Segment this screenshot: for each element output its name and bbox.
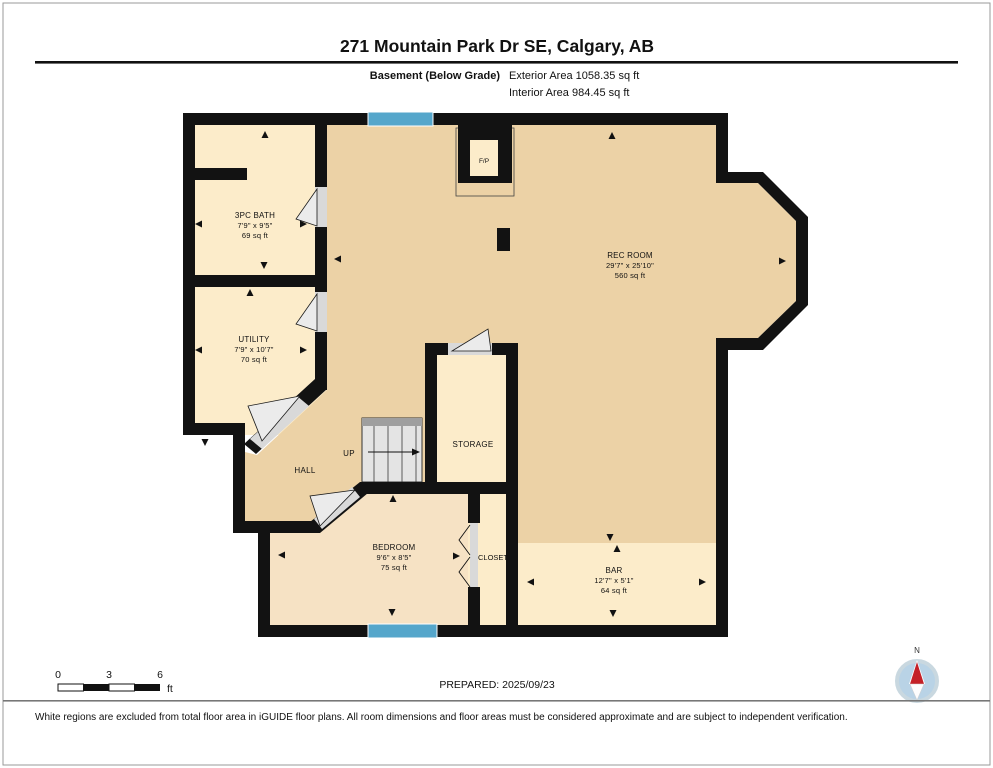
prepared-date: PREPARED: 2025/09/23 — [439, 679, 555, 691]
svg-text:75 sq ft: 75 sq ft — [381, 563, 408, 572]
svg-text:9'6" x 8'5": 9'6" x 8'5" — [377, 553, 412, 562]
svg-text:BAR: BAR — [605, 566, 622, 575]
exterior-area: Exterior Area 1058.35 sq ft — [509, 70, 639, 82]
footer-divider — [3, 700, 990, 702]
page-title: 271 Mountain Park Dr SE, Calgary, AB — [340, 36, 654, 56]
scale-tick-3: 3 — [106, 669, 112, 681]
scale-tick-0: 0 — [55, 669, 61, 681]
recroom-hall-fill — [245, 125, 796, 543]
scale-tick-6: 6 — [157, 669, 163, 681]
svg-text:UTILITY: UTILITY — [238, 335, 270, 344]
scale-unit: ft — [167, 683, 173, 695]
svg-text:560 sq ft: 560 sq ft — [615, 271, 646, 280]
storage-fill — [425, 343, 518, 494]
hall-label: HALL — [294, 466, 315, 475]
svg-text:7'9" x 9'5": 7'9" x 9'5" — [238, 221, 273, 230]
title-divider — [35, 61, 958, 64]
window-top — [368, 112, 433, 126]
disclaimer-text: White regions are excluded from total fl… — [35, 712, 848, 723]
floorplan-svg: 271 Mountain Park Dr SE, Calgary, AB Bas… — [0, 0, 993, 768]
compass-north-label: N — [914, 646, 920, 655]
up-label: UP — [343, 449, 355, 458]
svg-text:70 sq ft: 70 sq ft — [241, 355, 268, 364]
svg-text:REC ROOM: REC ROOM — [607, 251, 653, 260]
svg-text:69 sq ft: 69 sq ft — [242, 231, 269, 240]
storage-label: STORAGE — [452, 440, 493, 449]
svg-text:64 sq ft: 64 sq ft — [601, 586, 628, 595]
svg-text:3PC BATH: 3PC BATH — [235, 211, 275, 220]
svg-text:12'7" x 5'1": 12'7" x 5'1" — [594, 576, 633, 585]
closet-label: CLOSET — [478, 553, 508, 562]
column-post — [497, 228, 510, 251]
stairs — [362, 418, 422, 482]
floor-label: Basement (Below Grade) — [370, 70, 501, 82]
svg-text:BEDROOM: BEDROOM — [373, 543, 416, 552]
svg-text:29'7" x 25'10": 29'7" x 25'10" — [606, 261, 654, 270]
svg-text:7'9" x 10'7": 7'9" x 10'7" — [234, 345, 273, 354]
window-bottom — [368, 624, 437, 638]
bath-fill — [183, 113, 327, 287]
interior-area: Interior Area 984.45 sq ft — [509, 87, 629, 99]
floorplan-page: 271 Mountain Park Dr SE, Calgary, AB Bas… — [0, 0, 993, 768]
fireplace-label: F/P — [479, 158, 489, 165]
